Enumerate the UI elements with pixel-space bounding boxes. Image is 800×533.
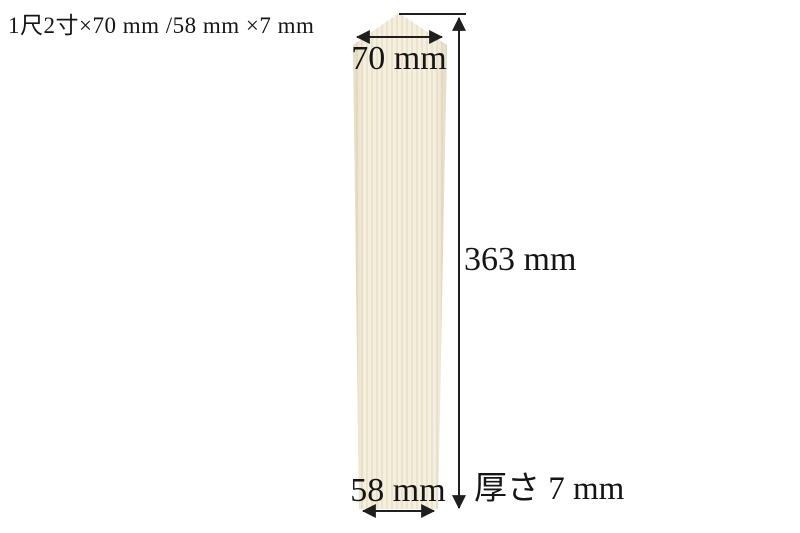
dimension-diagram: 1尺2寸×70 mm /58 mm ×7 mm 70 mm 363 mm 58 … <box>0 0 800 533</box>
thickness-label: 厚さ 7 mm <box>474 473 624 506</box>
top-width-label: 70 mm <box>339 42 459 76</box>
dimension-lines <box>0 0 800 533</box>
bottom-width-label: 58 mm <box>338 474 458 508</box>
height-label: 363 mm <box>464 243 576 277</box>
